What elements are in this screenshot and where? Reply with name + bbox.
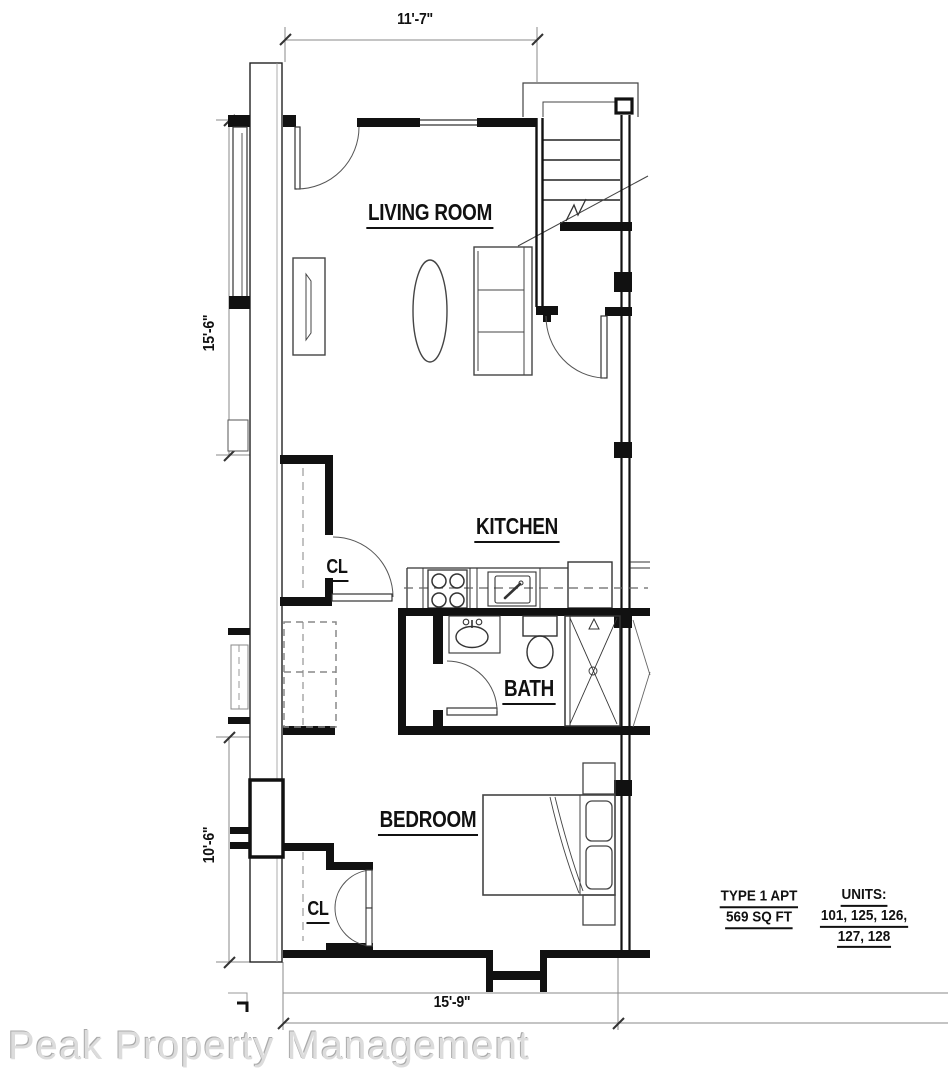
media-console — [293, 258, 325, 355]
closet-upper-label: CL — [325, 556, 348, 582]
bath-label: BATH — [502, 675, 555, 705]
dimension-bottom — [278, 958, 948, 1030]
entry-door — [546, 316, 607, 378]
closet-lower-label: CL — [306, 898, 329, 924]
living-room-label: LIVING ROOM — [366, 199, 493, 229]
exterior-wall-top — [357, 118, 537, 127]
floor-plan-canvas: Peak Property Management — [0, 0, 950, 1080]
shower — [565, 616, 620, 726]
units-info: UNITS: 101, 125, 126, 127, 128 — [820, 886, 908, 948]
right-wall — [614, 115, 632, 950]
kitchen-counter — [404, 562, 650, 608]
bedroom-walls — [283, 950, 650, 992]
units-line2: 127, 128 — [837, 927, 891, 948]
dimension-top-label: 11'-7" — [397, 11, 433, 29]
units-heading: UNITS: — [841, 886, 888, 907]
bedroom-label: BEDROOM — [378, 806, 478, 836]
neighbor-hatch — [633, 620, 650, 727]
sofa — [474, 247, 532, 375]
apartment-type-info: TYPE 1 APT 569 SQ FT — [720, 887, 799, 929]
living-room-door — [295, 127, 359, 189]
dimension-left-upper-label: 15'-6" — [201, 315, 219, 352]
dimension-left-lower — [216, 732, 252, 968]
dimension-top — [280, 27, 543, 82]
apt-type-line1: TYPE 1 APT — [720, 887, 799, 908]
dimension-left-lower-label: 10'-6" — [201, 827, 219, 864]
kitchen-sink — [488, 572, 536, 606]
kitchen-label: KITCHEN — [474, 513, 559, 543]
bed — [483, 763, 615, 925]
party-wall-strip — [228, 63, 296, 962]
bath-door — [447, 661, 497, 715]
toilet — [523, 616, 557, 668]
coffee-table-oval — [413, 260, 447, 362]
dimension-bottom-label: 15'-9" — [434, 994, 471, 1012]
washer-dryer — [284, 622, 336, 727]
bath-vanity-sink — [449, 616, 500, 653]
stove — [428, 570, 467, 608]
closet-upper — [280, 455, 393, 606]
apt-type-line2: 569 SQ FT — [725, 908, 793, 929]
bath-walls — [283, 616, 650, 735]
units-line1: 101, 125, 126, — [820, 907, 908, 928]
corner-mark — [228, 993, 247, 1012]
